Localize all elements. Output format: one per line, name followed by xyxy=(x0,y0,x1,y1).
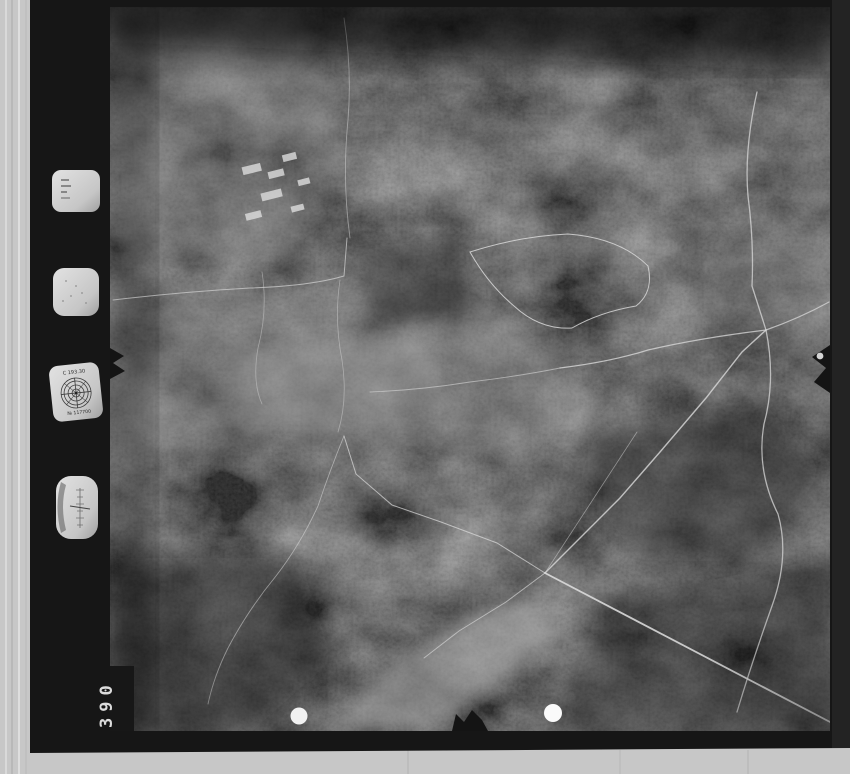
data-plate-icon xyxy=(52,170,100,212)
scan-canvas: C 193.30 № 117700 390 xyxy=(0,0,850,774)
aerial-photo-image xyxy=(110,7,830,732)
registration-dot-left xyxy=(291,708,308,725)
registration-dot-right xyxy=(544,704,562,722)
altimeter-dial-icon xyxy=(56,476,98,539)
frame-number: 390 xyxy=(97,679,117,728)
scanned-aerial-photo-page: C 193.30 № 117700 390 xyxy=(0,0,850,774)
collimation-target-icon: C 193.30 № 117700 xyxy=(48,362,104,423)
clock-dial-icon xyxy=(53,268,99,316)
